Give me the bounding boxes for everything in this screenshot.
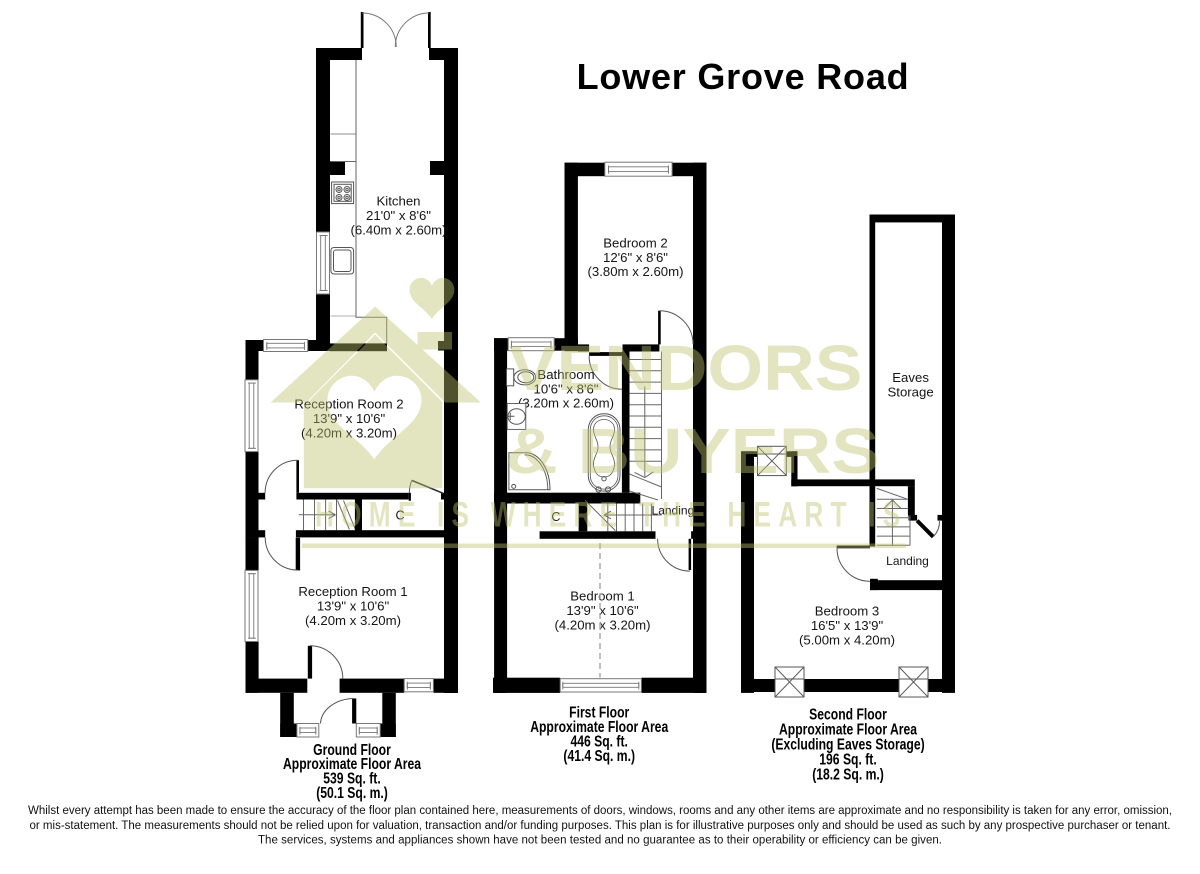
svg-text:The services, systems and appl: The services, systems and appliances sho… xyxy=(258,835,942,847)
svg-text:(5.00m x 4.20m): (5.00m x 4.20m) xyxy=(799,633,895,648)
svg-text:Bedroom 3: Bedroom 3 xyxy=(815,604,880,619)
svg-text:(3.80m x 2.60m): (3.80m x 2.60m) xyxy=(587,264,683,279)
svg-text:Reception Room 1: Reception Room 1 xyxy=(298,584,407,599)
svg-text:Lower Grove Road: Lower Grove Road xyxy=(577,56,910,97)
svg-text:VENDORS: VENDORS xyxy=(509,332,863,404)
svg-text:Bedroom 2: Bedroom 2 xyxy=(603,235,668,250)
svg-text:(6.40m x 2.60m): (6.40m x 2.60m) xyxy=(350,223,446,238)
svg-text:16'5" x 13'9": 16'5" x 13'9" xyxy=(811,618,884,633)
svg-text:(50.1 Sq. m.): (50.1 Sq. m.) xyxy=(316,784,388,802)
svg-text:Landing: Landing xyxy=(886,554,929,568)
svg-text:13'9" x 10'6": 13'9" x 10'6" xyxy=(317,598,390,613)
svg-text:(4.20m x 3.20m): (4.20m x 3.20m) xyxy=(554,618,650,633)
svg-text:or mis-statement. The measurem: or mis-statement. The measurements shoul… xyxy=(30,820,1171,832)
svg-text:13'9" x 10'6": 13'9" x 10'6" xyxy=(566,603,639,618)
svg-text:(41.4 Sq. m.): (41.4 Sq. m.) xyxy=(563,748,635,766)
svg-text:& BUYERS: & BUYERS xyxy=(505,415,879,487)
svg-text:Storage: Storage xyxy=(887,385,933,400)
svg-text:12'6" x 8'6": 12'6" x 8'6" xyxy=(603,250,668,265)
svg-text:Kitchen: Kitchen xyxy=(377,194,421,209)
svg-text:Eaves: Eaves xyxy=(892,370,929,385)
svg-text:Whilst every attempt has been: Whilst every attempt has been made to en… xyxy=(28,805,1172,817)
svg-text:(18.2 Sq. m.): (18.2 Sq. m.) xyxy=(812,766,884,784)
svg-text:Bedroom 1: Bedroom 1 xyxy=(570,589,635,604)
svg-text:(4.20m x 3.20m): (4.20m x 3.20m) xyxy=(305,613,401,628)
svg-text:21'0" x 8'6": 21'0" x 8'6" xyxy=(366,208,431,223)
svg-text:HOME IS WHERE THE HEART IS: HOME IS WHERE THE HEART IS xyxy=(315,495,907,535)
